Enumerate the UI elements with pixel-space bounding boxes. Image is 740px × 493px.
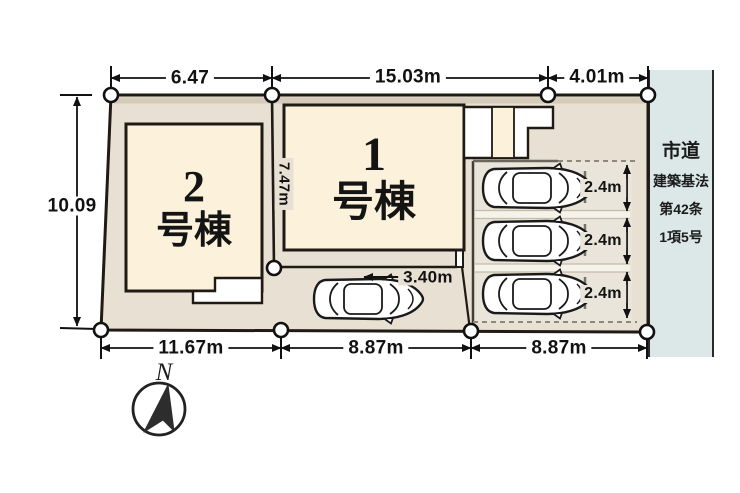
dimension-label-left: 10.09 xyxy=(42,197,101,216)
road-annotation: 市道 建築基法 第42条 1項5号 xyxy=(648,136,714,247)
building-1-number: 1 xyxy=(362,130,386,181)
road-law-label: 建築基法 xyxy=(653,171,709,191)
dimension-label-car-space: 3.40m xyxy=(398,269,458,286)
dimension-label-bottom-3: 8.87m xyxy=(526,339,591,358)
road-article-label: 第42条 xyxy=(659,199,703,219)
stall-width-label-3: 2.4m xyxy=(580,285,626,303)
site-plan-canvas: 6.47 15.03m 4.01m 10.09 11.67m 8.87m 8.8… xyxy=(0,0,740,493)
dimension-label-top-3: 4.01m xyxy=(564,68,629,87)
building-2-label: 2 号棟 xyxy=(126,124,262,291)
compass-icon xyxy=(133,383,185,435)
north-label: N xyxy=(156,359,173,387)
dimension-label-bottom-1: 11.67m xyxy=(153,339,228,358)
building-2-number: 2 xyxy=(183,164,205,211)
building-2-suffix: 号棟 xyxy=(156,211,232,251)
building-1-label: 1 号棟 xyxy=(284,105,464,250)
stall-width-label-2: 2.4m xyxy=(580,232,626,250)
road-type-label: 市道 xyxy=(662,136,700,163)
stall-width-label-1: 2.4m xyxy=(580,179,626,197)
dimension-label-bottom-2: 8.87m xyxy=(343,339,408,358)
dimension-label-top-1: 6.47 xyxy=(166,69,214,88)
road-item-label: 1項5号 xyxy=(659,227,703,247)
dimension-label-top-2: 15.03m xyxy=(370,68,446,87)
building-1-suffix: 号棟 xyxy=(332,181,416,226)
